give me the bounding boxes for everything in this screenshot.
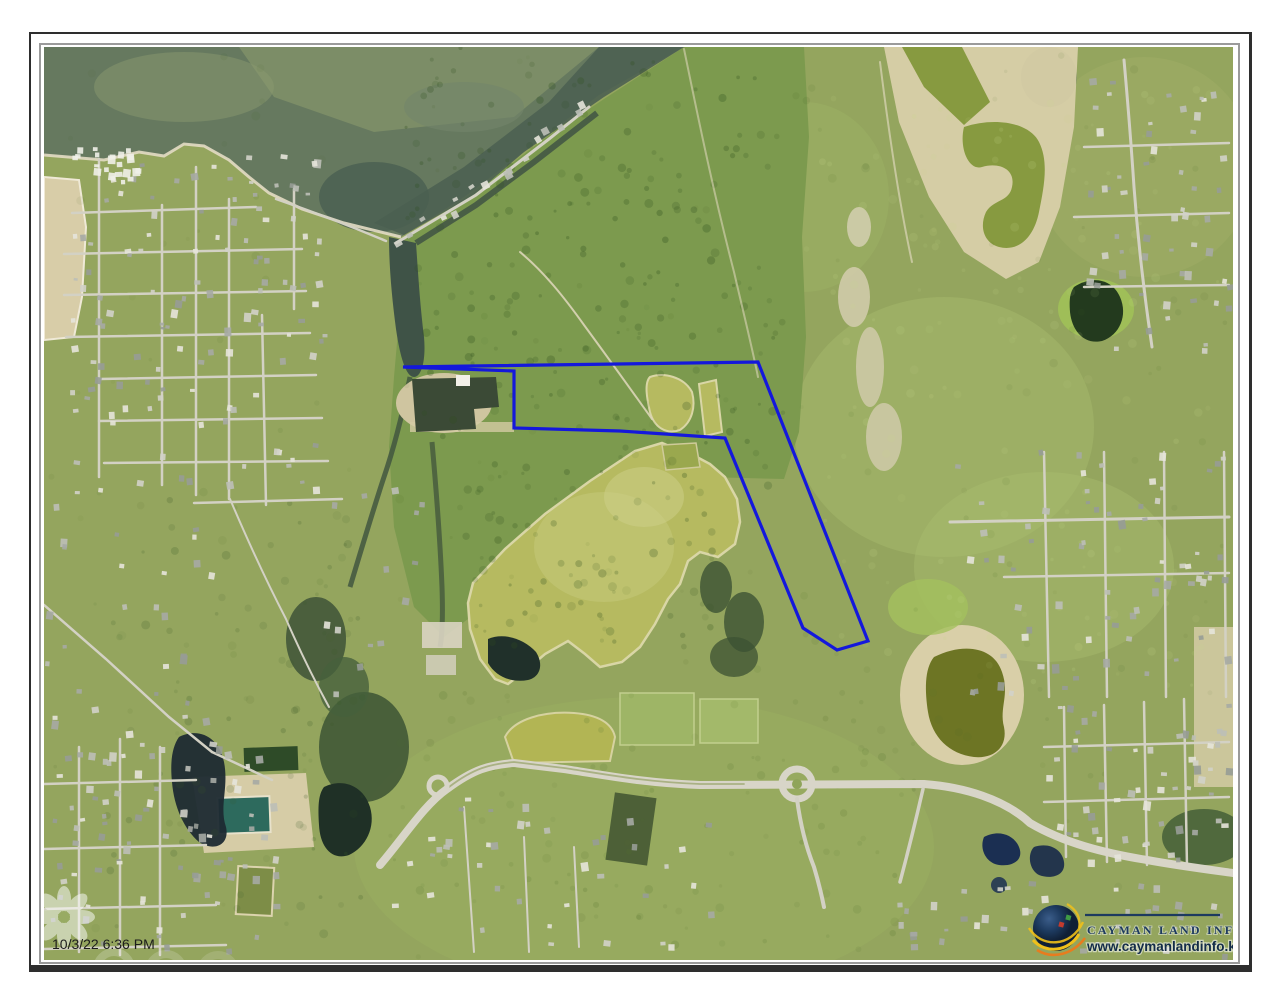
map-sheet-inner-frame: 10/3/22 6:36 PM CAYMAN LAND INFO www. xyxy=(39,43,1240,964)
map-sheet-frame: 10/3/22 6:36 PM CAYMAN LAND INFO www. xyxy=(29,32,1252,972)
logo-name: CAYMAN LAND INFO xyxy=(1087,923,1233,937)
aerial-photo: 10/3/22 6:36 PM CAYMAN LAND INFO www. xyxy=(44,47,1233,960)
map-timestamp: 10/3/22 6:36 PM xyxy=(52,936,155,952)
logo-website: www.caymanlandinfo.ky xyxy=(1086,939,1233,954)
